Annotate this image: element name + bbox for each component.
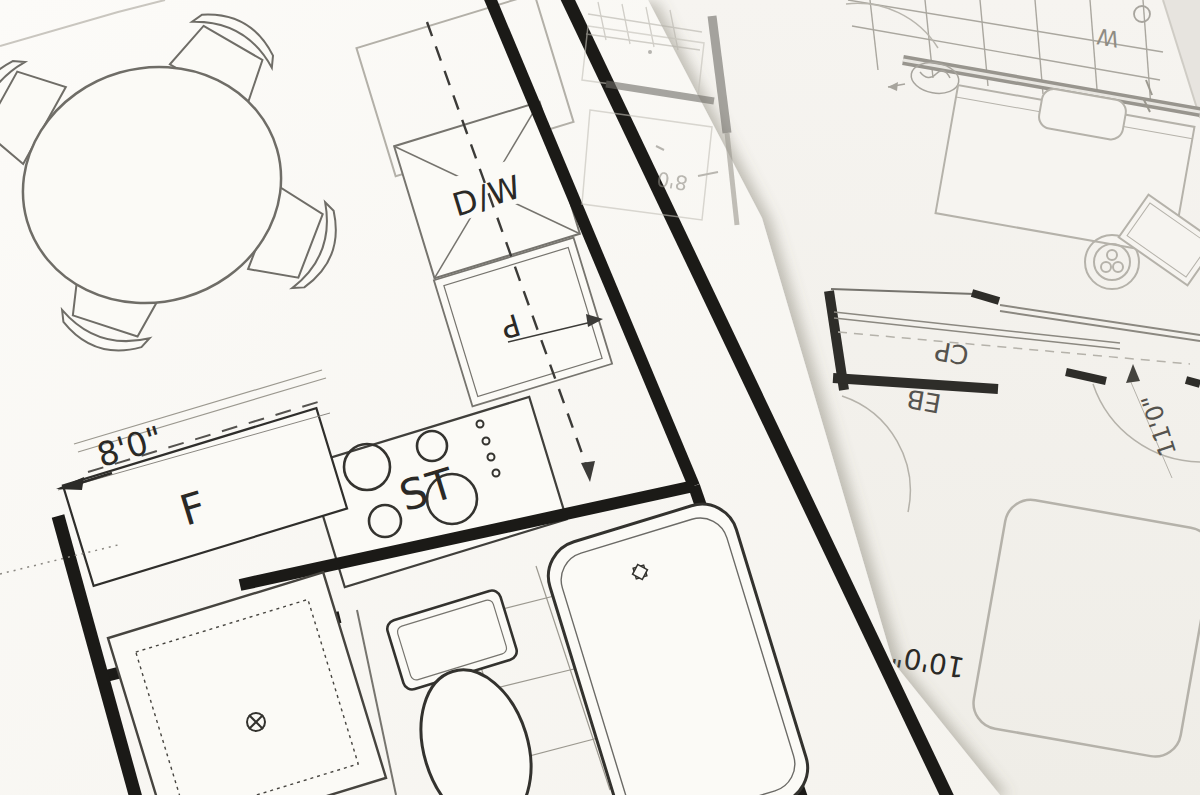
blueprint-photo: W [0, 0, 1200, 795]
closet-label: CP [933, 335, 972, 370]
laundry-label: W [1095, 23, 1121, 51]
entry-label: EB [904, 383, 943, 418]
